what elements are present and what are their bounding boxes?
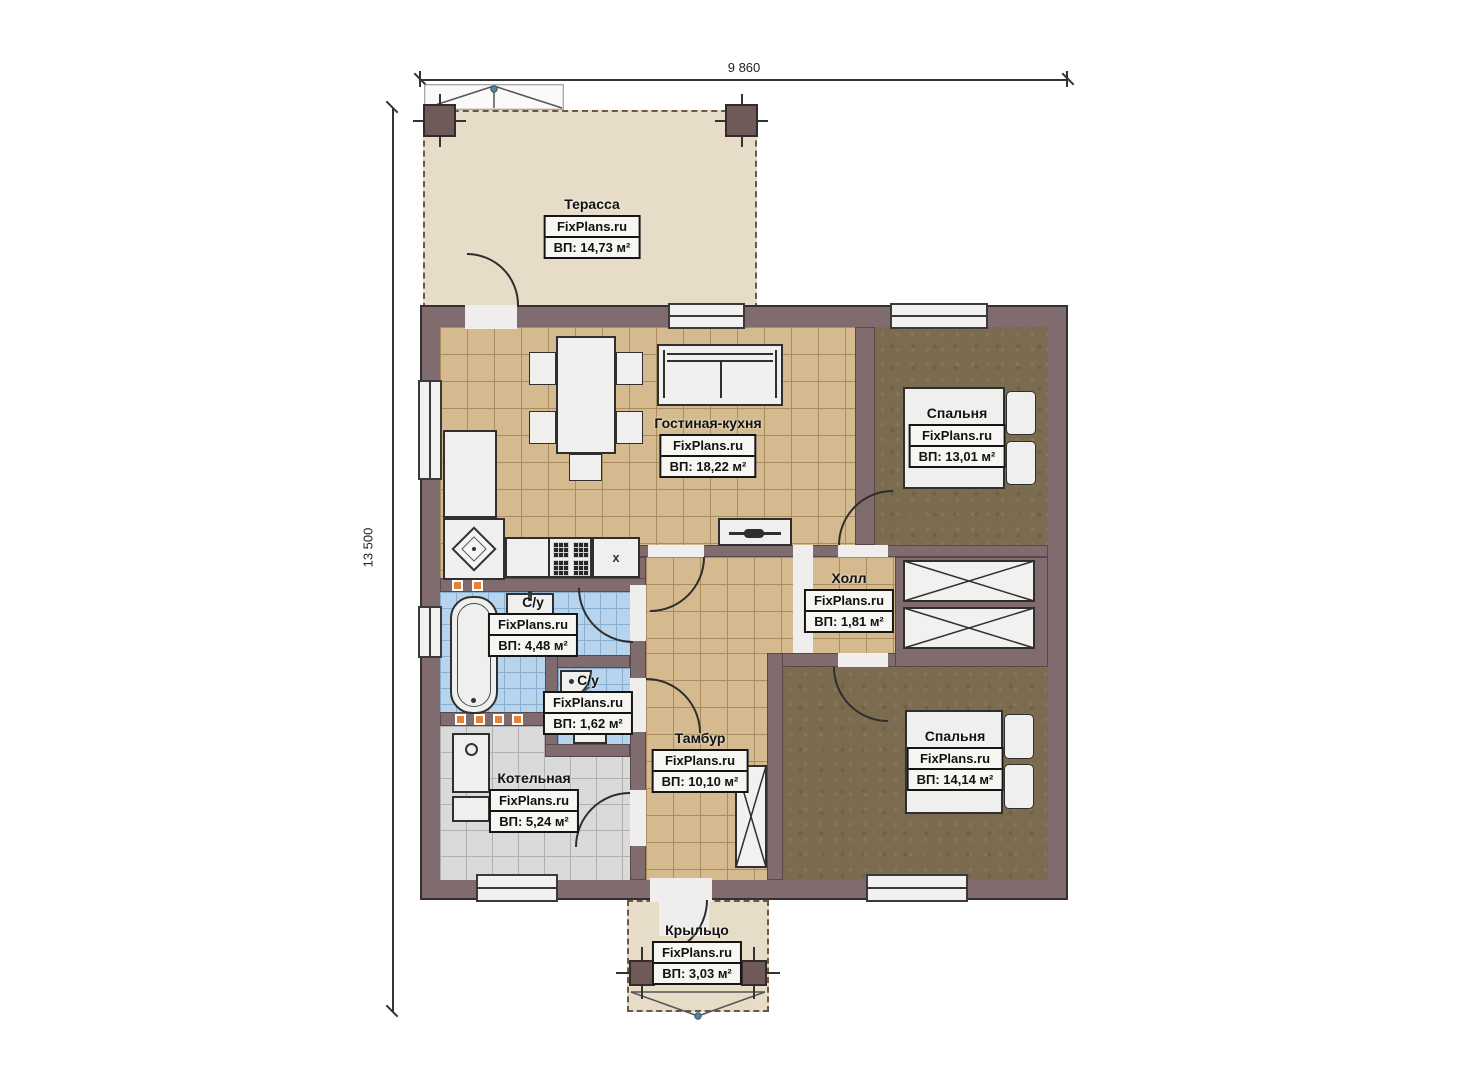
dimension-end-mark [419,71,421,87]
wardrobe [903,560,1035,602]
dimension-height-label: 13 500 [361,516,376,580]
glass-block-icon [452,580,463,591]
chair [616,411,643,444]
brand-label: FixPlans.ru [546,217,639,236]
room-name: Котельная [489,770,579,786]
area-label: ВП: 14,14 м² [909,768,1002,789]
room-info-box: FixPlans.ru ВП: 18,22 м² [660,434,757,478]
kitchen-cabinet [505,537,550,578]
pillow [1006,441,1036,485]
wall-partition [545,744,630,757]
room-label-hall: Холл FixPlans.ru ВП: 1,81 м² [804,570,894,633]
room-label-boiler-room: Котельная FixPlans.ru ВП: 5,24 м² [489,770,579,833]
brand-label: FixPlans.ru [662,436,755,455]
room-name: Гостиная-кухня [654,415,761,431]
room-name: Тамбур [652,730,749,746]
door-opening-living [648,545,704,557]
pillow [1004,714,1034,759]
room-label-bathroom-2: С/у FixPlans.ru ВП: 1,62 м² [543,672,633,735]
area-label: ВП: 4,48 м² [490,634,576,655]
room-label-living-kitchen: Гостиная-кухня FixPlans.ru ВП: 18,22 м² [654,415,761,478]
chair [616,352,643,385]
room-name: С/у [543,672,633,688]
terrace-column [725,104,758,137]
brand-label: FixPlans.ru [909,749,1002,768]
room-info-box: FixPlans.ru ВП: 10,10 м² [652,749,749,793]
room-label-bedroom-1: Спальня FixPlans.ru ВП: 13,01 м² [909,405,1006,468]
room-name: Спальня [907,728,1004,744]
room-info-box: FixPlans.ru ВП: 5,24 м² [489,789,579,833]
brand-label: FixPlans.ru [911,426,1004,445]
area-label: ВП: 10,10 м² [654,770,747,791]
chair [529,411,556,444]
room-info-box: FixPlans.ru ВП: 13,01 м² [909,424,1006,468]
room-label-vestibule: Тамбур FixPlans.ru ВП: 10,10 м² [652,730,749,793]
room-label-bathroom-1: С/у FixPlans.ru ВП: 4,48 м² [488,594,578,657]
glass-block-icon [474,714,485,725]
kitchen-sink-unit [443,518,505,580]
dimension-width-label: 9 860 [728,60,761,75]
stove [548,537,592,578]
door-opening-bedroom-1 [838,545,888,557]
window [418,380,442,480]
room-info-box: FixPlans.ru ВП: 14,73 м² [544,215,641,259]
glass-block-icon [455,714,466,725]
wardrobe [903,607,1035,649]
brand-label: FixPlans.ru [491,791,577,810]
area-label: ВП: 18,22 м² [662,455,755,476]
room-name: Холл [804,570,894,586]
glass-block-icon [512,714,523,725]
dining-table [556,336,616,454]
wall-partition [767,653,783,880]
brand-label: FixPlans.ru [490,615,576,634]
area-label: ВП: 1,62 м² [545,712,631,733]
window [866,874,968,902]
area-label: ВП: 3,03 м² [654,962,740,983]
door-opening-bedroom-2 [838,653,888,667]
room-label-bedroom-2: Спальня FixPlans.ru ВП: 14,14 м² [907,728,1004,791]
chair [569,454,602,481]
terrace-column [423,104,456,137]
boiler-shelf [452,796,490,822]
brand-label: FixPlans.ru [545,693,631,712]
floor-plan-canvas: 9 860 13 500 [0,0,1473,1080]
room-name: С/у [488,594,578,610]
dimension-end-mark [1066,71,1068,87]
room-name: Спальня [909,405,1006,421]
kitchen-cabinet-x: х [592,537,640,578]
brand-label: FixPlans.ru [806,591,892,610]
room-info-box: FixPlans.ru ВП: 1,81 м² [804,589,894,633]
porch-roof-mark [627,988,769,1022]
room-label-porch: Крыльцо FixPlans.ru ВП: 3,03 м² [652,922,742,985]
room-info-box: FixPlans.ru ВП: 1,62 м² [543,691,633,735]
door-opening-terrace [465,305,517,329]
door-opening-entrance [650,878,712,902]
area-label: ВП: 14,73 м² [546,236,639,257]
boiler-unit [452,733,490,793]
window [890,303,988,329]
dimension-line-left [392,108,394,1012]
brand-label: FixPlans.ru [654,751,747,770]
brand-label: FixPlans.ru [654,943,740,962]
glass-block-icon [493,714,504,725]
porch-column [741,960,767,986]
area-label: ВП: 1,81 м² [806,610,892,631]
sideboard [718,518,792,546]
window [418,606,442,658]
kitchen-counter [443,430,497,518]
area-label: ВП: 13,01 м² [911,445,1004,466]
chair [529,352,556,385]
room-name: Крыльцо [652,922,742,938]
room-info-box: FixPlans.ru ВП: 14,14 м² [907,747,1004,791]
room-info-box: FixPlans.ru ВП: 4,48 м² [488,613,578,657]
dimension-line-top [420,79,1068,81]
room-label-terrace: Терасса FixPlans.ru ВП: 14,73 м² [544,196,641,259]
pillow [1006,391,1036,435]
pillow [1004,764,1034,809]
room-info-box: FixPlans.ru ВП: 3,03 м² [652,941,742,985]
glass-block-icon [472,580,483,591]
room-name: Терасса [544,196,641,212]
door-opening-boiler [630,790,646,846]
area-label: ВП: 5,24 м² [491,810,577,831]
sofa [657,344,783,406]
window [476,874,558,902]
window [668,303,745,329]
